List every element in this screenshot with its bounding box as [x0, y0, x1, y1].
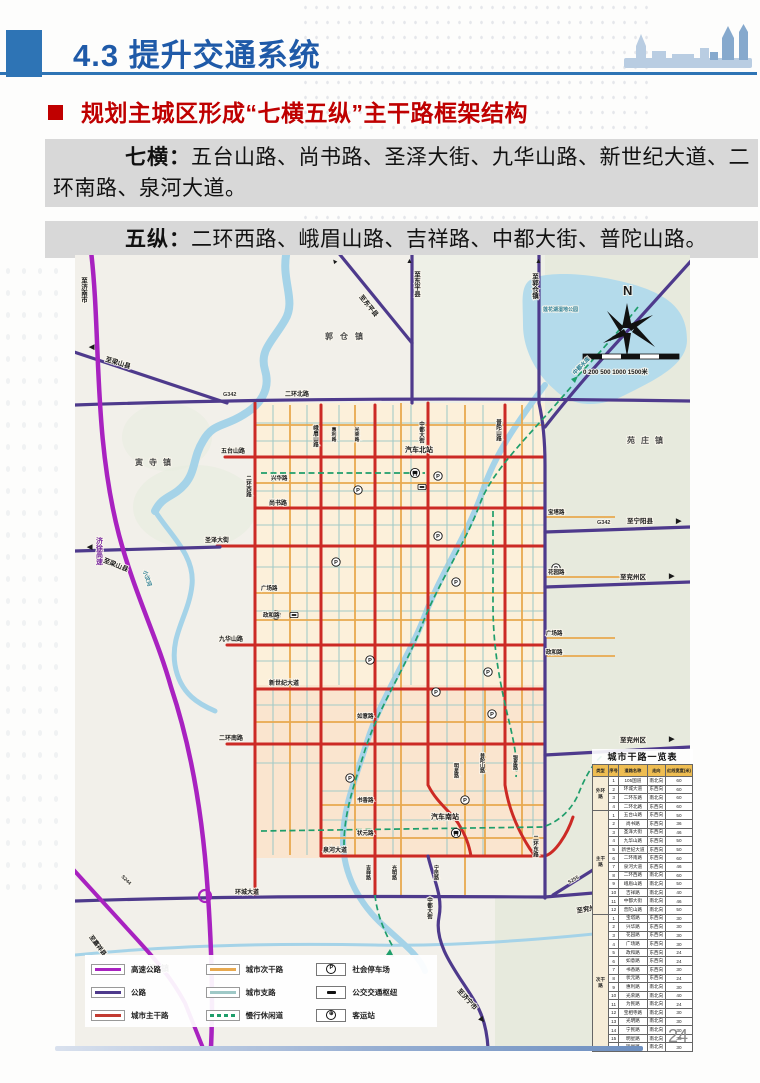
road-table-cell: 30 — [665, 940, 692, 949]
scale-bar — [583, 354, 679, 359]
map-label: 郭仓镇 — [325, 331, 370, 341]
legend-column-icons: P社会停车场公交交通枢纽⊕客运站 — [316, 960, 433, 1024]
road-table-cell: 南北向 — [647, 1017, 665, 1026]
road-table-row: 外环路1105国道南北向60 — [593, 777, 693, 786]
map-label: 二环北路 — [285, 390, 310, 398]
transit-hub-icon — [290, 612, 298, 617]
road-table-cell: 46 — [665, 862, 692, 871]
road-table-cell: 五台山路 — [619, 811, 647, 820]
map-label: 寅寺镇 — [135, 457, 177, 467]
legend-item: 城市主干路 — [91, 1006, 206, 1024]
road-table-cell: 10 — [609, 991, 619, 1000]
road-table-cell: 46 — [665, 828, 692, 837]
skyline-graphic — [622, 24, 754, 72]
map-label: 状元路 — [357, 829, 374, 837]
svg-text:P: P — [436, 534, 440, 540]
road-table-cell: 宁民路 — [619, 1026, 647, 1035]
road-table-cell: 3 — [609, 828, 619, 837]
parking-icon: P — [452, 578, 460, 586]
road-table-cell: 4 — [609, 802, 619, 811]
road-table-cell: 东西向 — [647, 845, 665, 854]
road-table-cell: 南北向 — [647, 871, 665, 880]
road-table-cell: 宝塔路 — [619, 914, 647, 923]
road-table-cell: 60 — [665, 785, 692, 794]
map-label: 莲花湖湿地公园 — [543, 306, 578, 313]
road-table-cell: 12 — [609, 905, 619, 914]
map-legend: 高速公路公路城市主干路 城市次干路城市支路慢行休闲道 P社会停车场公交交通枢纽⊕… — [85, 955, 437, 1027]
road-table-cell: 南北向 — [647, 794, 665, 803]
road-table-cell: 东西向 — [647, 914, 665, 923]
road-table-header: 序号 — [609, 765, 619, 777]
legend-label: 城市次干路 — [246, 964, 284, 975]
map-label: 普陀山路 — [479, 752, 486, 774]
road-table-cell: 60 — [665, 794, 692, 803]
road-table-cell: 8 — [609, 974, 619, 983]
road-table-cell: 东西向 — [647, 837, 665, 846]
road-table-cell: 24 — [665, 957, 692, 966]
map-label: 政和路 — [263, 611, 280, 619]
map-label: ▲ — [406, 258, 413, 265]
road-table-cell: 泉河大道 — [619, 862, 647, 871]
road-table-cell: 30 — [665, 1009, 692, 1018]
road-table-cell: 东西向 — [647, 966, 665, 975]
urban-core-south — [255, 685, 545, 858]
map-label: 花园路 — [548, 568, 565, 576]
svg-text:P: P — [436, 474, 440, 480]
road-table-cell: 30 — [665, 1017, 692, 1026]
road-table-cell: 吉祥路 — [619, 888, 647, 897]
map-label: 兴华路 — [271, 474, 288, 482]
map-label: 广场路 — [261, 584, 278, 592]
bus-station-icon — [451, 828, 460, 837]
road-table-cell: 宝相寺路 — [619, 1009, 647, 1018]
road-table-cell: 光明路 — [619, 1017, 647, 1026]
map-label: 汽车南站 — [431, 812, 459, 821]
legend-line-swatch — [206, 987, 240, 998]
background-watermark — [0, 260, 62, 900]
road-table-cell: 东西向 — [647, 785, 665, 794]
road-table-cell: 广场路 — [619, 940, 647, 949]
map-label: 宝塔路 — [548, 508, 565, 516]
svg-text:P: P — [434, 690, 438, 696]
parking-icon: P — [332, 558, 340, 566]
map-label: 至兖州区 — [620, 572, 647, 581]
legend-item: 公交交通枢纽 — [316, 983, 433, 1001]
parking-icon: P — [488, 710, 496, 718]
road-table-cell: 南北向 — [647, 1043, 665, 1052]
road-table-cell: 尚书路 — [619, 819, 647, 828]
road-table-cell: 圣泽大街 — [619, 828, 647, 837]
legend-item: 慢行休闲道 — [206, 1006, 317, 1024]
region-west-green — [133, 465, 257, 549]
map-label: 二环西路 — [245, 475, 252, 499]
road-table-cell: 普陀山路 — [619, 905, 647, 914]
road-table-cell: 南北向 — [647, 1000, 665, 1009]
seven-horizontal-label: 七横： — [125, 146, 191, 169]
map-label: 九华山路 — [218, 635, 244, 643]
map-label: 明星路 — [453, 762, 460, 779]
section-heading-row: 规划主城区形成“七横五纵”主干路框架结构 — [48, 94, 528, 128]
road-table-cell: 30 — [665, 914, 692, 923]
section-heading: 规划主城区形成“七横五纵”主干路框架结构 — [81, 94, 528, 128]
road-table-cell: 40 — [665, 991, 692, 1000]
map-label: 二环东路 — [532, 835, 539, 859]
transit-hub-legend-icon — [316, 986, 346, 999]
road-table-cell: 东西向 — [647, 828, 665, 837]
map-label: 圣泽大街 — [205, 536, 229, 544]
parking-icon: P — [366, 656, 374, 664]
svg-text:P: P — [454, 580, 458, 586]
map-label: 新世纪大道 — [269, 679, 299, 687]
road-table-cell: 9 — [609, 983, 619, 992]
page-title: 4.3 提升交通系统 — [73, 30, 321, 75]
legend-item: 高速公路 — [91, 960, 206, 978]
road-table-grid: 类型序号道路名称走向红线宽度(米) 外环路1105国道南北向602环城大道东西向… — [592, 764, 693, 1052]
road-table-cell: 4 — [609, 837, 619, 846]
road-table-row: 次干路1宝塔路东西向30 — [593, 914, 693, 923]
road-table-cell: 九华山路 — [619, 837, 647, 846]
road-table-cell: 4 — [609, 940, 619, 949]
coach-station-legend-icon: ⊕ — [316, 1009, 346, 1022]
road-table-cell: 惠利路 — [619, 983, 647, 992]
road-table-cell: 24 — [665, 974, 692, 983]
five-vertical-label: 五纵： — [125, 228, 191, 251]
road-table-header: 类型 — [593, 765, 609, 777]
legend-label: 城市支路 — [246, 987, 276, 998]
map-label: 广场路 — [546, 629, 563, 637]
parking-legend-icon: P — [316, 963, 346, 976]
map-label: 书香路 — [357, 796, 374, 804]
legend-item: 城市次干路 — [206, 960, 317, 978]
road-table-header: 红线宽度(米) — [665, 765, 692, 777]
road-table-cell: 50 — [665, 905, 692, 914]
map-label: 汽车北站 — [405, 445, 433, 454]
road-table-cell: 24 — [665, 1000, 692, 1009]
road-table-cell: 光荣路 — [619, 991, 647, 1000]
map-label: 五台山路 — [221, 447, 246, 455]
parking-icon: P — [354, 486, 362, 494]
map-label: 泉河大道 — [322, 846, 347, 854]
road-table-cell: 明星路 — [619, 1034, 647, 1043]
map-label: 0 200 500 1000 1500米 — [583, 368, 648, 376]
road-table-cell: 11 — [609, 897, 619, 906]
parking-icon: P — [434, 532, 442, 540]
road-table-cell: 6 — [609, 854, 619, 863]
road-table-cell: 30 — [665, 983, 692, 992]
parking-icon: P — [434, 472, 442, 480]
legend-item: 公路 — [91, 983, 206, 1001]
road-table-header: 走向 — [647, 765, 665, 777]
road-table-cell: 南北向 — [647, 888, 665, 897]
road-table-cell: 13 — [609, 1017, 619, 1026]
road-table-cell: 5 — [609, 948, 619, 957]
road-table-group: 外环路 — [593, 777, 609, 811]
map-label: 宁民路 — [433, 864, 440, 881]
map-label: ◀ — [88, 344, 95, 351]
svg-text:P: P — [356, 488, 360, 494]
road-table-cell: 东西向 — [647, 802, 665, 811]
road-table-cell: 7 — [609, 966, 619, 975]
map-label: N — [623, 283, 632, 298]
legend-column-lines-2: 城市次干路城市支路慢行休闲道 — [206, 960, 317, 1024]
road-table-cell: 30 — [665, 923, 692, 932]
road-table-cell: 二环东路 — [619, 794, 647, 803]
legend-label: 高速公路 — [131, 964, 161, 975]
svg-text:P: P — [334, 560, 338, 566]
road-table-cell: 为民路 — [619, 1000, 647, 1009]
map-label: 银星路 — [512, 754, 519, 771]
legend-label: 公路 — [131, 987, 146, 998]
road-table-cell: 50 — [665, 880, 692, 889]
road-table-cell: 105国道 — [619, 777, 647, 786]
map-label: ▶ — [668, 573, 675, 580]
road-table-cell: 8 — [609, 871, 619, 880]
map-label: 如意路 — [357, 712, 374, 720]
transit-hub-icon — [418, 484, 426, 489]
road-table-cell: 二环北路 — [619, 802, 647, 811]
paragraph-seven-horizontal: 七横：五台山路、尚书路、圣泽大街、九华山路、新世纪大道、二环南路、泉河大道。 — [45, 139, 758, 207]
road-table-cell: 状元路 — [619, 974, 647, 983]
road-table-cell: 3 — [609, 931, 619, 940]
map-label: G342 — [597, 520, 610, 526]
road-table-cell: 12 — [609, 1009, 619, 1018]
road-table-cell: 东西向 — [647, 940, 665, 949]
parking-icon: P — [432, 688, 440, 696]
map-label: 二环南路 — [219, 734, 244, 742]
road-table-row: 主干路1五台山路东西向50 — [593, 811, 693, 820]
road-table-cell: 60 — [665, 854, 692, 863]
map-label: 峨眉山路 — [312, 424, 319, 449]
road-table-cell: 书香路 — [619, 966, 647, 975]
road-table-cell: 9 — [609, 880, 619, 889]
road-table-cell: 南北向 — [647, 905, 665, 914]
road-table-cell: 东西向 — [647, 974, 665, 983]
road-table-cell: 政和路 — [619, 948, 647, 957]
road-table-cell: 东西向 — [647, 948, 665, 957]
svg-text:P: P — [490, 712, 494, 718]
road-table-title: 城市干路一览表 — [592, 749, 693, 764]
road-table-group: 主干路 — [593, 811, 609, 914]
road-table-cell: 40 — [665, 888, 692, 897]
road-table-cell: 东西向 — [647, 854, 665, 863]
road-table-cell: 30 — [665, 966, 692, 975]
road-table-cell: 环城大道 — [619, 785, 647, 794]
road-table-cell: 东西向 — [647, 923, 665, 932]
road-table-cell: 60 — [665, 871, 692, 880]
road-table-cell: 50 — [665, 845, 692, 854]
road-table-cell: 南北向 — [647, 1026, 665, 1035]
road-table-cell: 二环西路 — [619, 871, 647, 880]
map-label: 环城大道 — [235, 888, 259, 896]
road-table-cell: 兴华路 — [619, 923, 647, 932]
road-table-cell: 50 — [665, 837, 692, 846]
svg-text:P: P — [368, 658, 372, 664]
map-label: 吉祥路 — [365, 864, 372, 881]
heading-bullet — [48, 105, 63, 120]
road-table-cell: 二环南路 — [619, 854, 647, 863]
road-table-cell: 1 — [609, 777, 619, 786]
legend-label: 社会停车场 — [352, 964, 390, 975]
road-table-cell: 中都大街 — [619, 897, 647, 906]
road-table-cell: 11 — [609, 1000, 619, 1009]
road-table-cell: 7 — [609, 862, 619, 871]
road-table-cell: 1 — [609, 811, 619, 820]
legend-item: ⊕客运站 — [316, 1006, 433, 1024]
road-table-cell: 峨眉山路 — [619, 880, 647, 889]
road-table-cell: 46 — [665, 897, 692, 906]
road-table-cell: 南北向 — [647, 991, 665, 1000]
title-underline — [0, 72, 757, 75]
road-table: 城市干路一览表 类型序号道路名称走向红线宽度(米) 外环路1105国道南北向60… — [592, 749, 693, 1052]
map-label: ▶ — [675, 518, 682, 525]
legend-line-swatch — [91, 1010, 125, 1021]
road-table-cell: 2 — [609, 785, 619, 794]
legend-label: 慢行休闲道 — [246, 1010, 284, 1021]
five-vertical-text: 二环西路、峨眉山路、吉祥路、中都大街、普陀山路。 — [191, 228, 707, 251]
title-accent-square — [6, 30, 42, 77]
map-label: ▶ — [668, 736, 675, 743]
road-table-cell: 东西向 — [647, 862, 665, 871]
map-label: ▲ — [535, 258, 542, 265]
slide: 4.3 提升交通系统 规划主城区形成“七横五纵”主干路框架结构 七横：五台山路、… — [0, 0, 760, 1083]
legend-item: 城市支路 — [206, 983, 317, 1001]
map-label: 尚书路 — [269, 499, 288, 507]
road-table-cell: 南北向 — [647, 777, 665, 786]
road-table-cell: 如意路 — [619, 957, 647, 966]
map-label: 普陀山路 — [495, 418, 502, 443]
bus-station-icon — [410, 468, 419, 477]
svg-text:P: P — [348, 776, 352, 782]
road-table-cell: 24 — [665, 948, 692, 957]
road-table-cell: 南北向 — [647, 1009, 665, 1018]
road-table-cell: 10 — [609, 888, 619, 897]
footer-rule — [55, 1046, 643, 1051]
road-table-cell: 5 — [609, 845, 619, 854]
legend-label: 公交交通枢纽 — [352, 987, 397, 998]
road-table-group: 次干路 — [593, 914, 609, 1052]
road-table-header: 道路名称 — [619, 765, 647, 777]
road-table-cell: 南北向 — [647, 1034, 665, 1043]
road-table-cell: 36 — [665, 819, 692, 828]
map-label: 至兖州区 — [620, 735, 647, 744]
road-table-cell: 东西向 — [647, 811, 665, 820]
svg-text:P: P — [486, 670, 490, 676]
road-table-cell: 南北向 — [647, 983, 665, 992]
legend-label: 城市主干路 — [131, 1010, 169, 1021]
road-table-cell: 东西向 — [647, 931, 665, 940]
road-table-cell: 30 — [665, 931, 692, 940]
map-label: 苑庄镇 — [626, 435, 669, 445]
road-table-cell: 60 — [665, 777, 692, 786]
svg-text:P: P — [463, 798, 467, 804]
road-table-cell: 东西向 — [647, 819, 665, 828]
road-table-cell: 新世纪大道 — [619, 845, 647, 854]
road-table-cell: 1 — [609, 914, 619, 923]
road-table-cell: 花园路 — [619, 931, 647, 940]
road-table-cell: 2 — [609, 819, 619, 828]
road-table-cell: 南北向 — [647, 897, 665, 906]
page-number: 24 — [668, 1026, 688, 1047]
legend-item: P社会停车场 — [316, 960, 433, 978]
road-table-cell: 50 — [665, 811, 692, 820]
parking-icon: P — [484, 668, 492, 676]
road-table-cell: 东西向 — [647, 957, 665, 966]
map-label: 惠利路 — [331, 426, 336, 443]
road-table-cell: 14 — [609, 1026, 619, 1035]
road-table-cell: 2 — [609, 923, 619, 932]
parking-icon: P — [346, 774, 354, 782]
road-table-cell: 15 — [609, 1034, 619, 1043]
map-label: 至宁阳县 — [627, 516, 654, 525]
planning-map: PPPPPPPPPPPPP 至济南市▲至东平县▲至东平县▲至郭仓镇郭仓镇莲花湖湿… — [75, 255, 690, 1048]
legend-line-swatch — [91, 964, 125, 975]
map-label: 光明路 — [391, 864, 398, 881]
paragraph-five-vertical: 五纵：二环西路、峨眉山路、吉祥路、中都大街、普陀山路。 — [45, 221, 758, 258]
legend-line-swatch — [91, 987, 125, 998]
legend-label: 客运站 — [352, 1010, 375, 1021]
legend-line-swatch — [206, 1010, 240, 1021]
road-table-cell: 6 — [609, 957, 619, 966]
road-table-cell: 60 — [665, 802, 692, 811]
legend-line-swatch — [206, 964, 240, 975]
map-label: 政和路 — [546, 648, 563, 656]
legend-column-lines-1: 高速公路公路城市主干路 — [91, 960, 206, 1024]
road-table-cell: 南北向 — [647, 880, 665, 889]
map-label: G342 — [223, 392, 236, 398]
road-table-cell: 3 — [609, 794, 619, 803]
parking-icon: P — [461, 796, 469, 804]
map-label: ◀ — [86, 544, 93, 551]
